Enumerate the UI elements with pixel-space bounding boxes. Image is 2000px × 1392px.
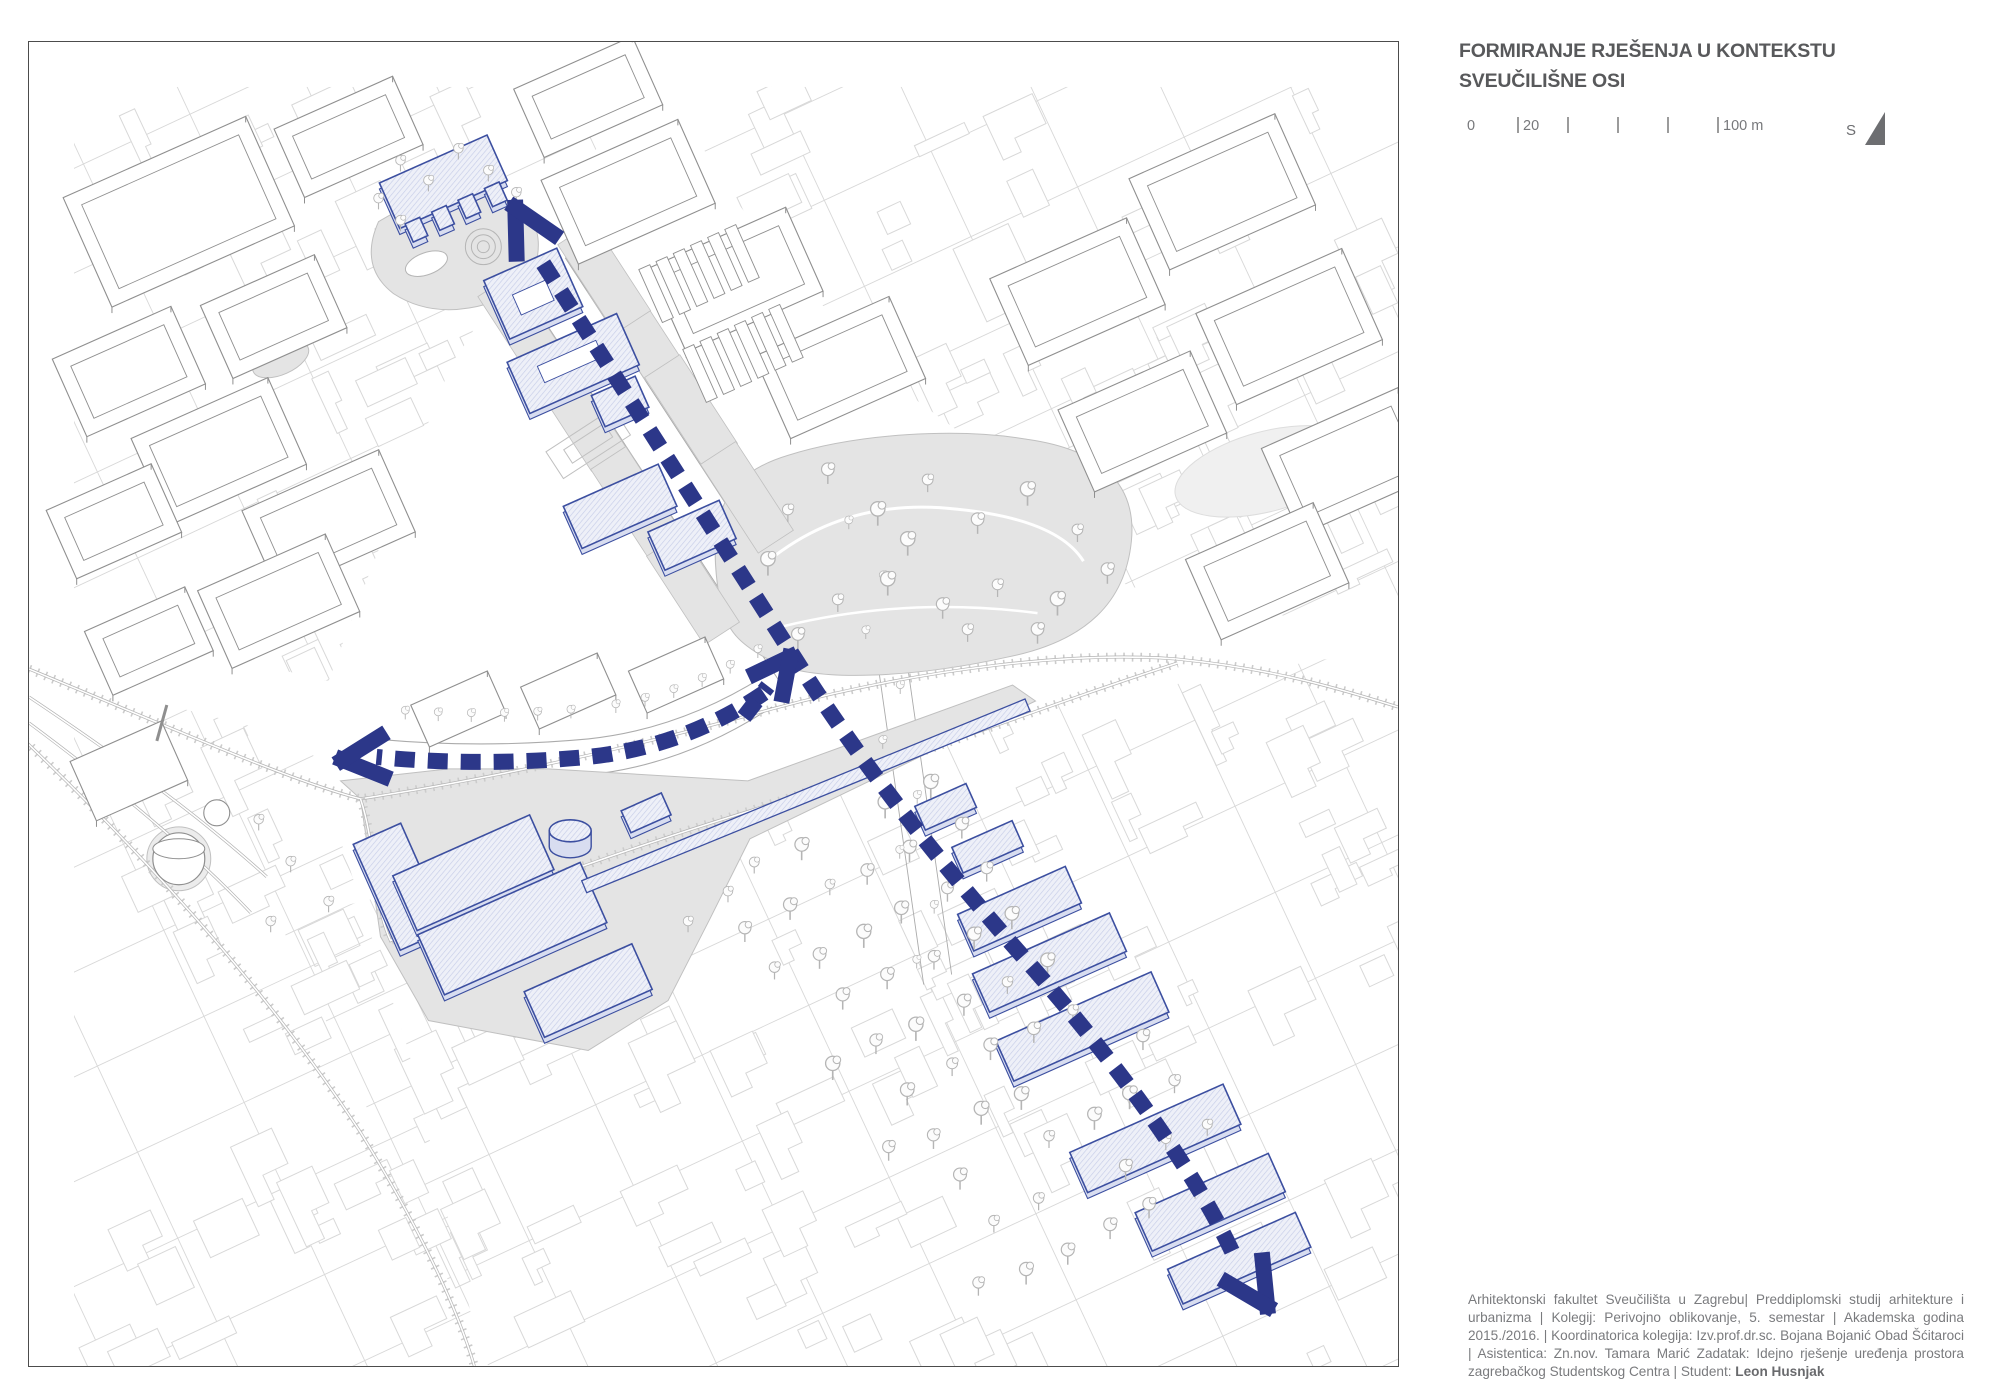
tree-icon [974, 1101, 989, 1125]
tree-icon [825, 879, 835, 895]
tree-icon [754, 645, 762, 658]
tree-icon [1137, 1029, 1150, 1050]
tree-icon [836, 988, 850, 1010]
tree-icon [723, 886, 733, 902]
tree-icon [726, 660, 734, 673]
tree-icon [401, 706, 409, 719]
north-label: S [1846, 122, 1856, 139]
tree-icon [739, 921, 752, 942]
tree-icon [749, 857, 759, 874]
scale-bar: 0 20 100 m [1467, 117, 1797, 137]
tree-icon [984, 1038, 998, 1060]
tree-icon [783, 898, 797, 920]
tree-icon [500, 708, 508, 721]
axonometric-site-plan [29, 42, 1398, 1366]
tree-icon [286, 856, 296, 872]
tree-icon [795, 837, 809, 860]
page-title-line1: FORMIRANJE RJEŠENJA U KONTEKSTU [1459, 36, 1836, 66]
tree-icon [266, 916, 276, 932]
tree-icon [883, 1140, 896, 1160]
tree-icon [826, 1056, 841, 1080]
scale-label-100: 100 m [1723, 118, 1763, 134]
credits-text: Arhitektonski fakultet Sveučilišta u Zag… [1468, 1291, 1964, 1381]
tree-icon [881, 967, 895, 989]
scale-tick [1667, 117, 1669, 133]
scale-label-0: 0 [1467, 118, 1475, 134]
tree-icon [1033, 1193, 1044, 1211]
tree-icon [913, 955, 921, 968]
tree-icon [1014, 1087, 1029, 1110]
tree-icon [896, 681, 904, 694]
tree-icon [813, 947, 826, 968]
tree-icon [861, 864, 874, 885]
tree-icon [1169, 1074, 1181, 1093]
tree-icon [973, 1277, 985, 1296]
tree-icon [1019, 1262, 1033, 1284]
tree-icon [981, 862, 993, 882]
credits-body: Arhitektonski fakultet Sveučilišta u Zag… [1468, 1292, 1964, 1379]
tree-icon [954, 1168, 968, 1190]
tree-icon [913, 790, 921, 803]
site-plan-frame [28, 41, 1399, 1367]
tree-icon [857, 924, 872, 948]
tree-icon [909, 1017, 924, 1041]
tree-icon [1061, 1243, 1075, 1265]
page-title: FORMIRANJE RJEŠENJA U KONTEKSTU SVEUČILI… [1459, 36, 1836, 96]
page-title-line2: SVEUČILIŠNE OSI [1459, 66, 1836, 96]
student-name: Leon Husnjak [1735, 1364, 1824, 1379]
tree-icon [1088, 1107, 1102, 1130]
scale-label-20: 20 [1523, 118, 1539, 134]
tree-icon [324, 896, 334, 912]
north-arrow-icon [1862, 110, 1888, 148]
scale-tick [1517, 117, 1519, 133]
tree-icon [927, 1129, 940, 1149]
scale-tick [1617, 117, 1619, 133]
tree-icon [612, 700, 620, 713]
tree-icon [930, 900, 938, 913]
tree-icon [989, 1215, 1000, 1232]
tree-icon [955, 817, 968, 838]
tree-icon [769, 962, 780, 980]
tree-icon [1104, 1218, 1117, 1239]
scale-tick [1717, 117, 1719, 133]
tree-icon [947, 1058, 959, 1076]
scale-tick [1567, 117, 1569, 133]
